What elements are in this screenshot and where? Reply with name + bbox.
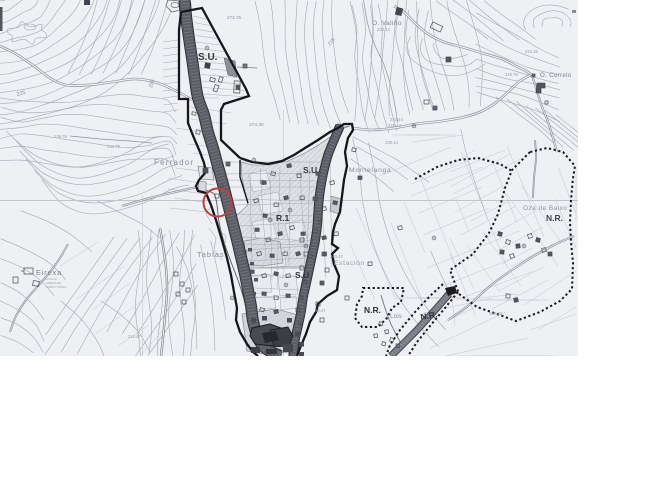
svg-text:245.44: 245.44 (388, 123, 401, 128)
svg-text:238.12: 238.12 (377, 27, 390, 32)
svg-text:44.47: 44.47 (315, 308, 326, 313)
svg-text:243.44: 243.44 (390, 117, 403, 122)
svg-text:272.75: 272.75 (227, 15, 241, 20)
svg-text:SANTO TOMAS: SANTO TOMAS (46, 285, 66, 289)
svg-text:238.14: 238.14 (385, 140, 398, 145)
svg-text:212.47: 212.47 (128, 334, 141, 339)
svg-text:Oza de Baixo: Oza de Baixo (523, 205, 567, 212)
svg-text:Lois: Lois (390, 313, 403, 320)
svg-text:222.26: 222.26 (525, 49, 538, 54)
svg-text:O. Correlo: O. Correlo (540, 72, 572, 79)
svg-text:239.78: 239.78 (54, 134, 67, 139)
svg-text:Ferrador: Ferrador (154, 158, 194, 167)
svg-text:274.30: 274.30 (249, 122, 264, 128)
svg-text:243.42: 243.42 (330, 254, 343, 259)
svg-text:N.R.: N.R. (364, 305, 381, 315)
svg-text:S.U.: S.U. (198, 52, 218, 63)
svg-text:192.25: 192.25 (489, 311, 502, 316)
svg-text:Estación: Estación (334, 260, 365, 267)
svg-text:S.U: S.U (295, 270, 309, 280)
svg-text:N.R.: N.R. (546, 213, 563, 223)
svg-text:Eirexa: Eirexa (36, 268, 62, 277)
svg-text:O. Valiño: O. Valiño (372, 20, 402, 27)
svg-text:244.78: 244.78 (107, 144, 120, 149)
svg-text:R.1: R.1 (276, 213, 290, 223)
svg-text:Tablas: Tablas (197, 250, 225, 259)
svg-text:S.U.: S.U. (303, 165, 320, 175)
svg-text:219.75: 219.75 (505, 72, 518, 77)
svg-text:Montelanga: Montelanga (349, 167, 392, 174)
